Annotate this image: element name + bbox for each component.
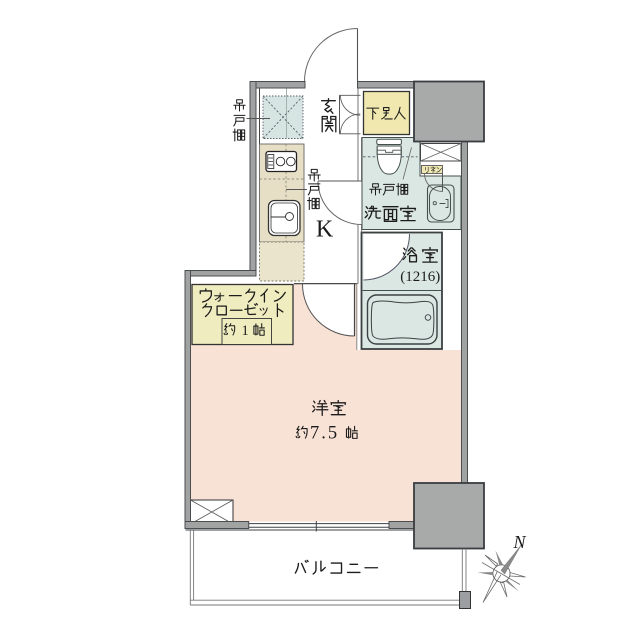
svg-text:7.5: 7.5 [310,424,339,444]
svg-text:K: K [316,217,334,243]
svg-text:1: 1 [242,323,249,339]
svg-text:(1216): (1216) [400,269,440,285]
svg-text:N: N [513,532,527,552]
